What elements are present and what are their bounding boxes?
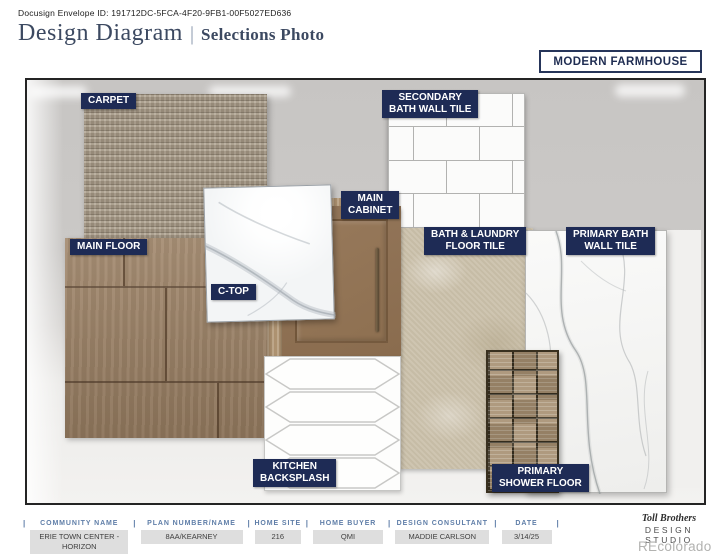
docusign-envelope-id: Docusign Envelope ID: 191712DC-5FCA-4F20… — [18, 8, 291, 18]
column-design-consultant: DESIGN CONSULTANT MADDIE CARLSON — [395, 518, 489, 544]
label-main-floor: MAIN FLOOR — [70, 239, 147, 255]
label-line: PRIMARY BATH — [573, 229, 648, 241]
column-community-name: COMMUNITY NAME ERIE TOWN CENTER - HORIZO… — [30, 518, 128, 554]
column-value: ERIE TOWN CENTER - HORIZON — [30, 530, 128, 554]
column-header: COMMUNITY NAME — [40, 518, 118, 528]
label-main-cabinet: MAIN CABINET — [341, 191, 399, 219]
cabinet-handle — [376, 248, 379, 332]
column-value: QMI — [313, 530, 383, 544]
column-separator: | — [306, 519, 308, 528]
column-header: HOME BUYER — [320, 518, 376, 528]
plank-joint — [217, 383, 219, 438]
label-secondary-bath-wall-tile: SECONDARY BATH WALL TILE — [382, 90, 478, 118]
subway-tile-row — [389, 194, 524, 227]
label-line: MAIN — [348, 193, 392, 205]
page-title: Design Diagram|Selections Photo — [18, 20, 324, 47]
label-primary-shower-floor: PRIMARY SHOWER FLOOR — [492, 464, 589, 492]
countertop-sample — [203, 184, 334, 322]
title-selections-photo: Selections Photo — [201, 25, 324, 44]
label-line: SECONDARY — [389, 92, 471, 104]
column-separator: | — [388, 519, 390, 528]
label-line: CABINET — [348, 205, 392, 217]
column-value: 3/14/25 — [502, 530, 552, 544]
label-c-top: C-TOP — [211, 284, 256, 300]
column-separator: | — [248, 519, 250, 528]
column-value: 216 — [255, 530, 301, 544]
label-kitchen-backsplash: KITCHEN BACKSPLASH — [253, 459, 336, 487]
selections-photo-board: CARPET MAIN FLOOR C-TOP MAIN CABINET SEC… — [25, 78, 706, 505]
column-separator: | — [494, 519, 496, 528]
column-home-site: HOME SITE 216 — [255, 518, 301, 544]
label-line: BACKSPLASH — [260, 473, 329, 485]
column-date: DATE 3/14/25 — [502, 518, 552, 544]
label-primary-bath-wall-tile: PRIMARY BATH WALL TILE — [566, 227, 655, 255]
column-header: HOME SITE — [254, 518, 301, 528]
wall-highlight — [615, 84, 685, 97]
wall-sheen — [27, 80, 63, 503]
recolorado-watermark: REcolorado — [638, 539, 712, 554]
brand-name: Toll Brothers — [626, 513, 712, 524]
column-header: DESIGN CONSULTANT — [397, 518, 488, 528]
column-header: PLAN NUMBER/NAME — [147, 518, 236, 528]
column-separator: | — [133, 519, 135, 528]
label-line: SHOWER FLOOR — [499, 478, 582, 490]
project-info-table: | COMMUNITY NAME ERIE TOWN CENTER - HORI… — [18, 518, 564, 554]
plank-joint — [165, 288, 167, 381]
column-value: 8AA/KEARNEY — [141, 530, 243, 544]
label-line: WALL TILE — [573, 241, 648, 253]
column-plan-number: PLAN NUMBER/NAME 8AA/KEARNEY — [141, 518, 243, 544]
column-separator: | — [557, 519, 559, 528]
title-divider: | — [190, 23, 194, 45]
subway-tile-row — [389, 127, 524, 160]
column-home-buyer: HOME BUYER QMI — [313, 518, 383, 544]
label-line: FLOOR TILE — [431, 241, 519, 253]
title-design-diagram: Design Diagram — [18, 20, 183, 46]
label-line: BATH WALL TILE — [389, 104, 471, 116]
style-badge: MODERN FARMHOUSE — [539, 50, 702, 73]
label-line: PRIMARY — [499, 466, 582, 478]
label-line: BATH & LAUNDRY — [431, 229, 519, 241]
countertop-veins — [204, 185, 335, 323]
label-line: KITCHEN — [260, 461, 329, 473]
label-bath-laundry-floor-tile: BATH & LAUNDRY FLOOR TILE — [424, 227, 526, 255]
label-carpet: CARPET — [81, 93, 136, 109]
column-value: MADDIE CARLSON — [395, 530, 489, 544]
subway-tile-row — [389, 161, 524, 194]
column-separator: | — [23, 519, 25, 528]
column-header: DATE — [515, 518, 537, 528]
